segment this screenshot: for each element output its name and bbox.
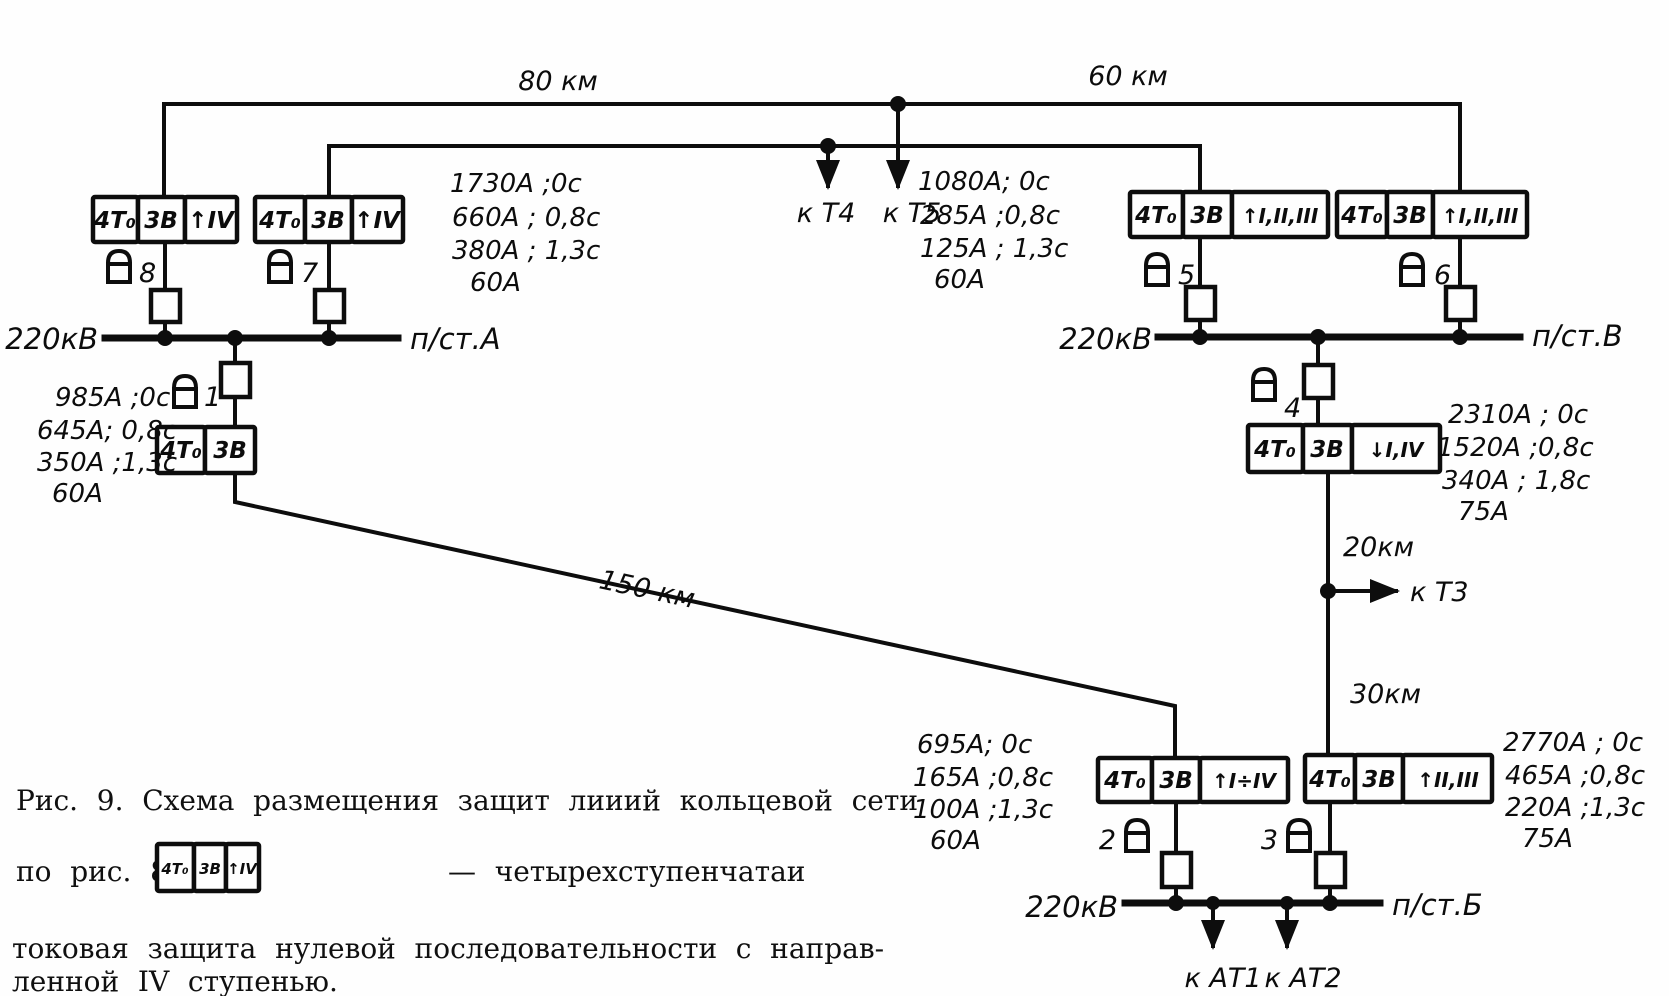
- breaker-8: [151, 290, 180, 322]
- line-30km-label: 30км: [1350, 679, 1421, 710]
- breaker-5: [1186, 287, 1215, 320]
- relay6-number: 6: [1434, 260, 1451, 291]
- relay-chain-4: 4 4Т₀ 3В ↓I,IV 20км к Т3 30км: [1248, 337, 1469, 755]
- relay5-cell3-text: ↑I,II,III: [1242, 204, 1319, 228]
- relay4-cell2-text: 3В: [1310, 437, 1344, 463]
- protection-scheme-diagram: 80 км 60 км к Т5 к Т4 220кВ п/ст.А 4Т₀ 3…: [0, 0, 1669, 996]
- legend-cell2-text: 3В: [199, 860, 221, 878]
- station-b-voltage: 220кВ: [1025, 890, 1118, 924]
- breaker-2: [1162, 853, 1191, 887]
- line-60km-label: 60 км: [1088, 61, 1168, 92]
- relay7-number: 7: [301, 258, 318, 289]
- settings-relay3: 2770А ; 0с 465А ;0,8с 220А ;1,3с 75А: [1503, 728, 1645, 854]
- tap-t3-label: к Т3: [1410, 577, 1469, 608]
- relay1-cell2-text: 3В: [213, 438, 247, 464]
- breaker-6: [1446, 287, 1475, 320]
- settings-r4-line2: 1520А ;0,8с: [1437, 433, 1594, 463]
- lock-icon-5: [1146, 254, 1168, 285]
- settings-r5-line2: 285А ;0,8с: [920, 201, 1060, 231]
- relay3-cell3-text: ↑II,III: [1417, 768, 1479, 792]
- line-80km-label: 80 км: [518, 66, 598, 97]
- relay6-cell1-text: 4Т₀: [1340, 203, 1383, 229]
- relay2-number: 2: [1099, 825, 1116, 856]
- relay6-cell2-text: 3В: [1393, 203, 1427, 229]
- breaker-1: [221, 363, 250, 397]
- lock-icon-4: [1253, 369, 1275, 400]
- settings-r2-line3: 100А ;1,3с: [913, 795, 1053, 825]
- line-20km-label: 20км: [1343, 532, 1414, 563]
- scanned-figure-page: 80 км 60 км к Т5 к Т4 220кВ п/ст.А 4Т₀ 3…: [0, 0, 1669, 996]
- lock-icon-1: [174, 376, 196, 407]
- lock-icon-8: [108, 251, 130, 282]
- settings-r1-line4: 60А: [52, 479, 103, 509]
- settings-r3-line3: 220А ;1,3с: [1505, 793, 1645, 823]
- caption-legend-description: — четырехступенчатаи: [448, 855, 805, 888]
- settings-r7-line1: 1730А ;0с: [450, 169, 582, 199]
- station-a-voltage: 220кВ: [5, 322, 98, 356]
- relay3-cell1-text: 4Т₀: [1308, 767, 1351, 793]
- relay-chain-1: 4Т₀ 3В 1 150 км: [157, 338, 1175, 758]
- settings-relay2: 695А; 0с 165А ;0,8с 100А ;1,3с 60А: [913, 730, 1053, 856]
- station-v-name: п/ст.В: [1532, 319, 1623, 353]
- settings-r4-line4: 75А: [1458, 497, 1509, 527]
- lock-icon-6: [1401, 254, 1423, 285]
- relay8-number: 8: [139, 258, 156, 289]
- station-a-name: п/ст.А: [410, 322, 501, 356]
- settings-r7-line4: 60А: [470, 268, 521, 298]
- settings-r3-line4: 75А: [1522, 824, 1573, 854]
- relay5-number: 5: [1178, 260, 1195, 291]
- lock-icon-2: [1126, 820, 1148, 851]
- caption-line-1: Рис. 9. Схема размещения защит лииий кол…: [16, 784, 918, 817]
- relay2-cell2-text: 3В: [1159, 768, 1193, 794]
- relay2-cell1-text: 4Т₀: [1103, 768, 1146, 794]
- settings-r1-line3: 350А ;1,3с: [37, 448, 177, 478]
- relay-chain-3: 4Т₀ 3В ↑II,III 3: [1261, 755, 1492, 903]
- settings-r3-line2: 465А ;0,8с: [1505, 761, 1645, 791]
- settings-r5-line3: 125А ; 1,3с: [920, 234, 1068, 264]
- tap-t4: к Т4: [797, 138, 856, 229]
- settings-r7-line2: 660А ; 0,8с: [452, 203, 600, 233]
- relay8-cell1-text: 4Т₀: [93, 208, 136, 234]
- lock-icon-3: [1288, 820, 1310, 851]
- relay7-cell1-text: 4Т₀: [258, 208, 301, 234]
- settings-r1-line2: 645А; 0,8с: [37, 416, 177, 446]
- relay8-cell3-text: ↑IV: [188, 208, 236, 234]
- tap-t4-label: к Т4: [797, 198, 856, 229]
- settings-r4-line1: 2310А ; 0с: [1448, 400, 1588, 430]
- settings-r2-line1: 695А; 0с: [917, 730, 1032, 760]
- settings-r2-line2: 165А ;0,8с: [913, 763, 1053, 793]
- relay5-cell2-text: 3В: [1190, 203, 1224, 229]
- legend-cell3-text: ↑IV: [227, 860, 258, 878]
- settings-r7-line3: 380А ; 1,3с: [452, 236, 600, 266]
- relay4-number: 4: [1284, 393, 1301, 424]
- relay-chain-2: 4Т₀ 3В ↑I÷IV 2: [1098, 758, 1288, 903]
- line-150km-label: 150 км: [597, 565, 698, 615]
- bus-b-dot-1: [1168, 895, 1184, 911]
- settings-relay4: 2310А ; 0с 1520А ;0,8с 340А ; 1,8с 75А: [1437, 400, 1594, 527]
- line-a-v-outer: 80 км 60 км: [164, 61, 1460, 197]
- relay7-cell3-text: ↑IV: [354, 208, 402, 234]
- breaker-7: [315, 290, 344, 322]
- station-v-voltage: 220кВ: [1059, 322, 1152, 356]
- relay4-cell1-text: 4Т₀: [1253, 437, 1296, 463]
- station-a: 220кВ п/ст.А: [5, 322, 500, 356]
- relay-chain-5: 4Т₀ 3В ↑I,II,III 5: [1130, 192, 1328, 337]
- relay-chain-6: 4Т₀ 3В ↑I,II,III 6: [1337, 192, 1527, 337]
- relay2-cell3-text: ↑I÷IV: [1212, 769, 1277, 793]
- station-v: 220кВ п/ст.В: [1059, 319, 1622, 356]
- settings-relay7: 1730А ;0с 660А ; 0,8с 380А ; 1,3с 60А: [450, 169, 600, 298]
- lock-icon-7: [269, 251, 291, 282]
- settings-r3-line1: 2770А ; 0с: [1503, 728, 1643, 758]
- relay1-number: 1: [204, 382, 221, 413]
- relay3-number: 3: [1261, 825, 1278, 856]
- settings-relay5: 1080А; 0с 285А ;0,8с 125А ; 1,3с 60А: [918, 167, 1068, 295]
- relay5-cell1-text: 4Т₀: [1134, 203, 1177, 229]
- relay7-cell2-text: 3В: [311, 208, 345, 234]
- settings-r2-line4: 60А: [930, 826, 981, 856]
- settings-r5-line4: 60А: [934, 265, 985, 295]
- station-b-name: п/ст.Б: [1392, 888, 1483, 922]
- station-b: 220кВ п/ст.Б к АТ1 к АТ2: [1025, 888, 1482, 994]
- relay4-cell3-text: ↓I,IV: [1369, 438, 1425, 462]
- relay6-cell3-text: ↑I,II,III: [1442, 204, 1519, 228]
- legend-cell1-text: 4Т₀: [160, 860, 189, 878]
- relay8-cell2-text: 3В: [144, 208, 178, 234]
- relay-chain-7: 4Т₀ 3В ↑IV 7: [255, 197, 403, 338]
- relay3-cell2-text: 3В: [1362, 767, 1396, 793]
- tap-at2-label: к АТ2: [1264, 963, 1341, 994]
- line-150km: [235, 473, 1175, 758]
- settings-r5-line1: 1080А; 0с: [918, 167, 1050, 197]
- settings-r1-line1: 985А ;0с: [55, 383, 170, 413]
- breaker-4: [1304, 365, 1333, 398]
- caption-line-3: токовая защита нулевой последовательност…: [12, 932, 884, 965]
- settings-r4-line3: 340А ; 1,8с: [1442, 466, 1590, 496]
- figure-caption: Рис. 9. Схема размещения защит лииий кол…: [12, 784, 918, 996]
- bus-b-dot-4: [1322, 895, 1338, 911]
- caption-line-4: ленной IV ступенью.: [12, 965, 338, 996]
- relay-chain-8: 4Т₀ 3В ↑IV 8: [93, 197, 237, 338]
- breaker-3: [1316, 853, 1345, 887]
- tap-at1-label: к АТ1: [1184, 963, 1261, 994]
